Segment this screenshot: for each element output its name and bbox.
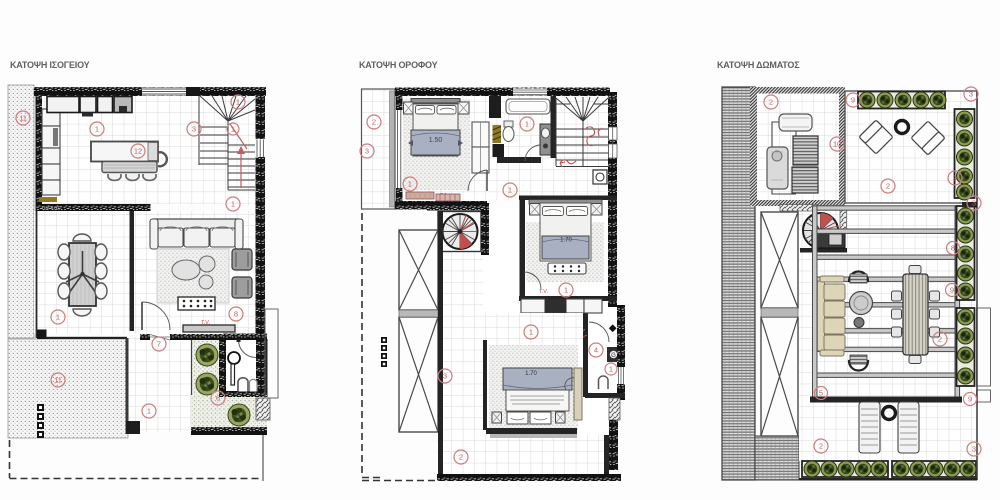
svg-text:1: 1 (231, 125, 235, 134)
svg-text:1.50: 1.50 (429, 137, 443, 144)
svg-text:8: 8 (234, 310, 238, 319)
svg-text:1: 1 (147, 407, 151, 416)
svg-text:1: 1 (564, 286, 568, 295)
svg-text:2: 2 (819, 442, 823, 451)
svg-text:2: 2 (938, 335, 942, 344)
svg-text:9: 9 (950, 285, 954, 294)
svg-text:1: 1 (508, 186, 512, 195)
svg-text:6: 6 (216, 394, 220, 403)
svg-text:3: 3 (192, 125, 196, 134)
svg-text:11: 11 (54, 376, 62, 385)
svg-text:9: 9 (953, 174, 957, 183)
svg-text:1.70: 1.70 (525, 371, 537, 377)
svg-text:1: 1 (95, 125, 99, 134)
svg-text:10: 10 (833, 140, 841, 149)
svg-text:ΚΑΤΟΨΗ ΔΩΜΑΤΟΣ: ΚΑΤΟΨΗ ΔΩΜΑΤΟΣ (717, 60, 800, 70)
svg-text:2: 2 (886, 182, 890, 191)
svg-text:3: 3 (443, 372, 447, 381)
svg-text:2: 2 (769, 98, 773, 107)
svg-text:G: G (611, 353, 616, 359)
svg-text:11: 11 (19, 114, 27, 123)
svg-text:9: 9 (968, 394, 972, 403)
svg-text:1: 1 (408, 180, 412, 189)
svg-text:ΚΑΤΟΨΗ ΙΣΟΓΕΙΟΥ: ΚΑΤΟΨΗ ΙΣΟΓΕΙΟΥ (10, 60, 90, 70)
svg-text:ΚΑΤΟΨΗ ΟΡΟΦΟΥ: ΚΑΤΟΨΗ ΟΡΟΦΟΥ (359, 60, 438, 70)
svg-text:1: 1 (236, 98, 240, 107)
svg-text:T.V.: T.V. (539, 289, 548, 295)
svg-text:5: 5 (819, 388, 823, 397)
svg-text:1: 1 (231, 200, 235, 209)
svg-text:12: 12 (134, 147, 142, 156)
svg-text:1: 1 (525, 120, 529, 129)
svg-text:1: 1 (529, 328, 533, 337)
svg-text:ΠΑΓΚΟΣ: ΠΑΓΚΟΣ (42, 206, 60, 211)
svg-text:4: 4 (594, 346, 598, 355)
svg-text:1: 1 (609, 364, 613, 373)
svg-text:3: 3 (365, 147, 369, 156)
svg-text:3: 3 (972, 199, 976, 208)
svg-text:3: 3 (969, 90, 973, 99)
svg-text:7: 7 (157, 340, 161, 349)
svg-text:3: 3 (972, 445, 976, 454)
svg-text:1.70: 1.70 (560, 238, 572, 244)
svg-text:1: 1 (56, 313, 60, 322)
svg-text:2: 2 (372, 118, 376, 127)
svg-text:9: 9 (851, 96, 855, 105)
svg-text:2: 2 (459, 453, 463, 462)
svg-text:8: 8 (951, 243, 955, 252)
